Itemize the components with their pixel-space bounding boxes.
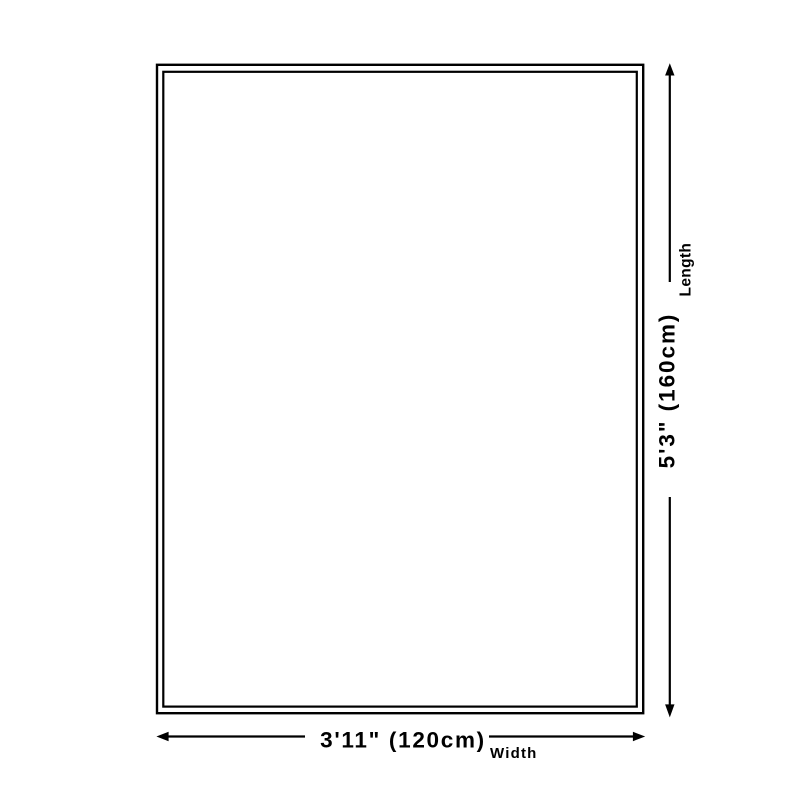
svg-text:Length: Length: [678, 243, 695, 297]
svg-text:3'11" (120cm): 3'11" (120cm): [320, 728, 486, 753]
svg-text:5'3" (160cm): 5'3" (160cm): [655, 313, 680, 469]
svg-text:Width: Width: [490, 745, 538, 762]
